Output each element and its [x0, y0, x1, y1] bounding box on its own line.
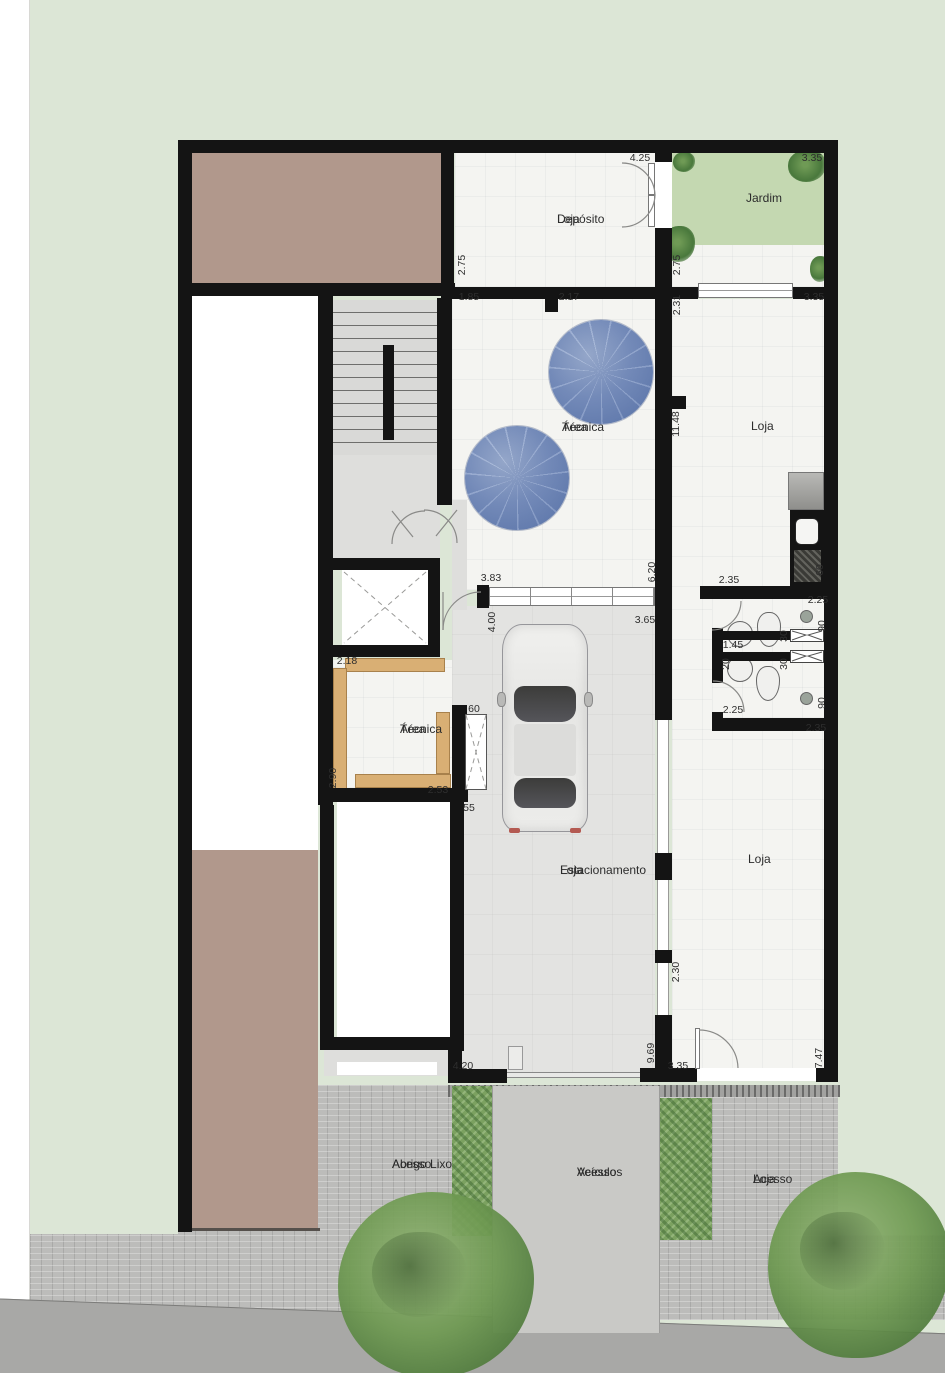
- dimension-label: 3.35: [802, 153, 822, 164]
- dimension-label: 60: [468, 704, 480, 715]
- dimension-label: 4.25: [630, 153, 650, 164]
- dimension-label: 30: [779, 658, 790, 670]
- dimension-label: 4.20: [453, 1061, 473, 1072]
- room-label-line: Técnica: [400, 722, 442, 737]
- dimension-label: 1.45: [723, 640, 743, 651]
- dimension-label: 4.00: [487, 612, 498, 632]
- dimension-label: 6.20: [647, 562, 658, 582]
- dimension-label: 2.35: [719, 575, 739, 586]
- dimension-label: 60: [815, 564, 826, 576]
- dimension-label: 11.48: [671, 411, 682, 437]
- dimension-label: 2.31: [672, 295, 683, 315]
- dimension-label: 2.53: [428, 785, 448, 796]
- dimension-label: 2.18: [337, 656, 357, 667]
- dimension-label: 2.30: [671, 962, 682, 982]
- dimension-label: 7.47: [814, 1048, 825, 1068]
- room-label-line: Loja: [753, 1172, 776, 1187]
- dimension-label: 20: [721, 658, 732, 670]
- dimension-label: 9.69: [646, 1043, 657, 1063]
- dimension-label: 2.17: [559, 292, 579, 303]
- dimension-label: 2.25: [808, 595, 828, 606]
- dimension-label: 90: [817, 620, 828, 632]
- dimension-label: 1.85: [459, 292, 479, 303]
- room-label-line: Loja: [560, 863, 583, 878]
- room-label-line: Abrigo Lixo: [392, 1157, 452, 1172]
- labels-layer: DepósitoLojaJardimÁreaTécnicaLojaÁreaTéc…: [0, 0, 945, 1373]
- dimension-label: 55: [463, 803, 475, 814]
- dimension-label: 3.65: [635, 615, 655, 626]
- dimension-label: 30: [779, 630, 790, 642]
- dimension-label: 2.25: [723, 705, 743, 716]
- dimension-label: 2.75: [457, 255, 468, 275]
- room-label-line: Veículos: [577, 1165, 622, 1180]
- floor-plan-canvas: DepósitoLojaJardimÁreaTécnicaLojaÁreaTéc…: [0, 0, 945, 1373]
- room-label-line: Loja: [748, 852, 771, 867]
- room-label-line: Loja: [557, 212, 580, 227]
- room-label-line: Loja: [751, 419, 774, 434]
- room-label-line: Técnica: [562, 420, 604, 435]
- dimension-label: 2.35: [806, 723, 826, 734]
- dimension-label: 2.90: [328, 768, 339, 788]
- dimension-label: 2.75: [672, 255, 683, 275]
- dimension-label: 3.35: [804, 292, 824, 303]
- dimension-label: 3.83: [481, 573, 501, 584]
- room-label-line: Jardim: [746, 191, 782, 206]
- dimension-label: 3.35: [668, 1061, 688, 1072]
- dimension-label: 90: [817, 697, 828, 709]
